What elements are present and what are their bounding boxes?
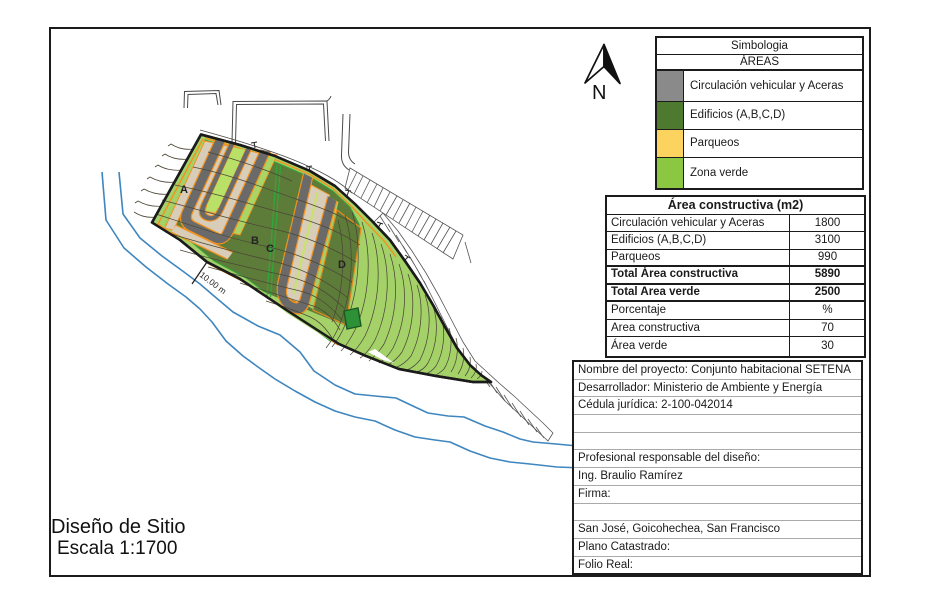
svg-text:B: B (251, 235, 259, 247)
svg-text:N: N (592, 82, 606, 104)
svg-text:10.00 m: 10.00 m (198, 270, 229, 296)
svg-text:A: A (180, 184, 188, 196)
svg-text:D: D (338, 259, 346, 271)
svg-text:C: C (266, 243, 274, 255)
